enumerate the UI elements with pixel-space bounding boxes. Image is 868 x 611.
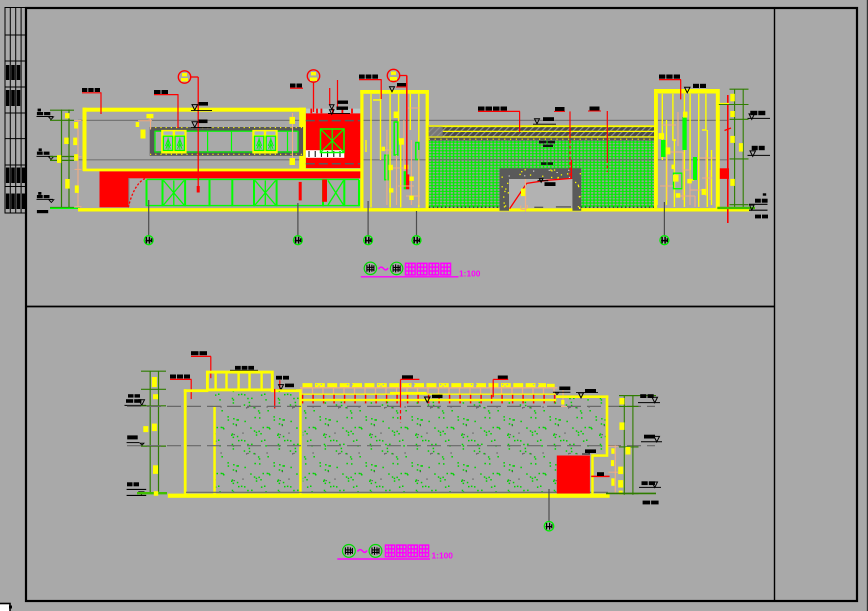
svg-text:1:100: 1:100: [459, 269, 481, 279]
svg-text:1:100: 1:100: [432, 551, 454, 561]
